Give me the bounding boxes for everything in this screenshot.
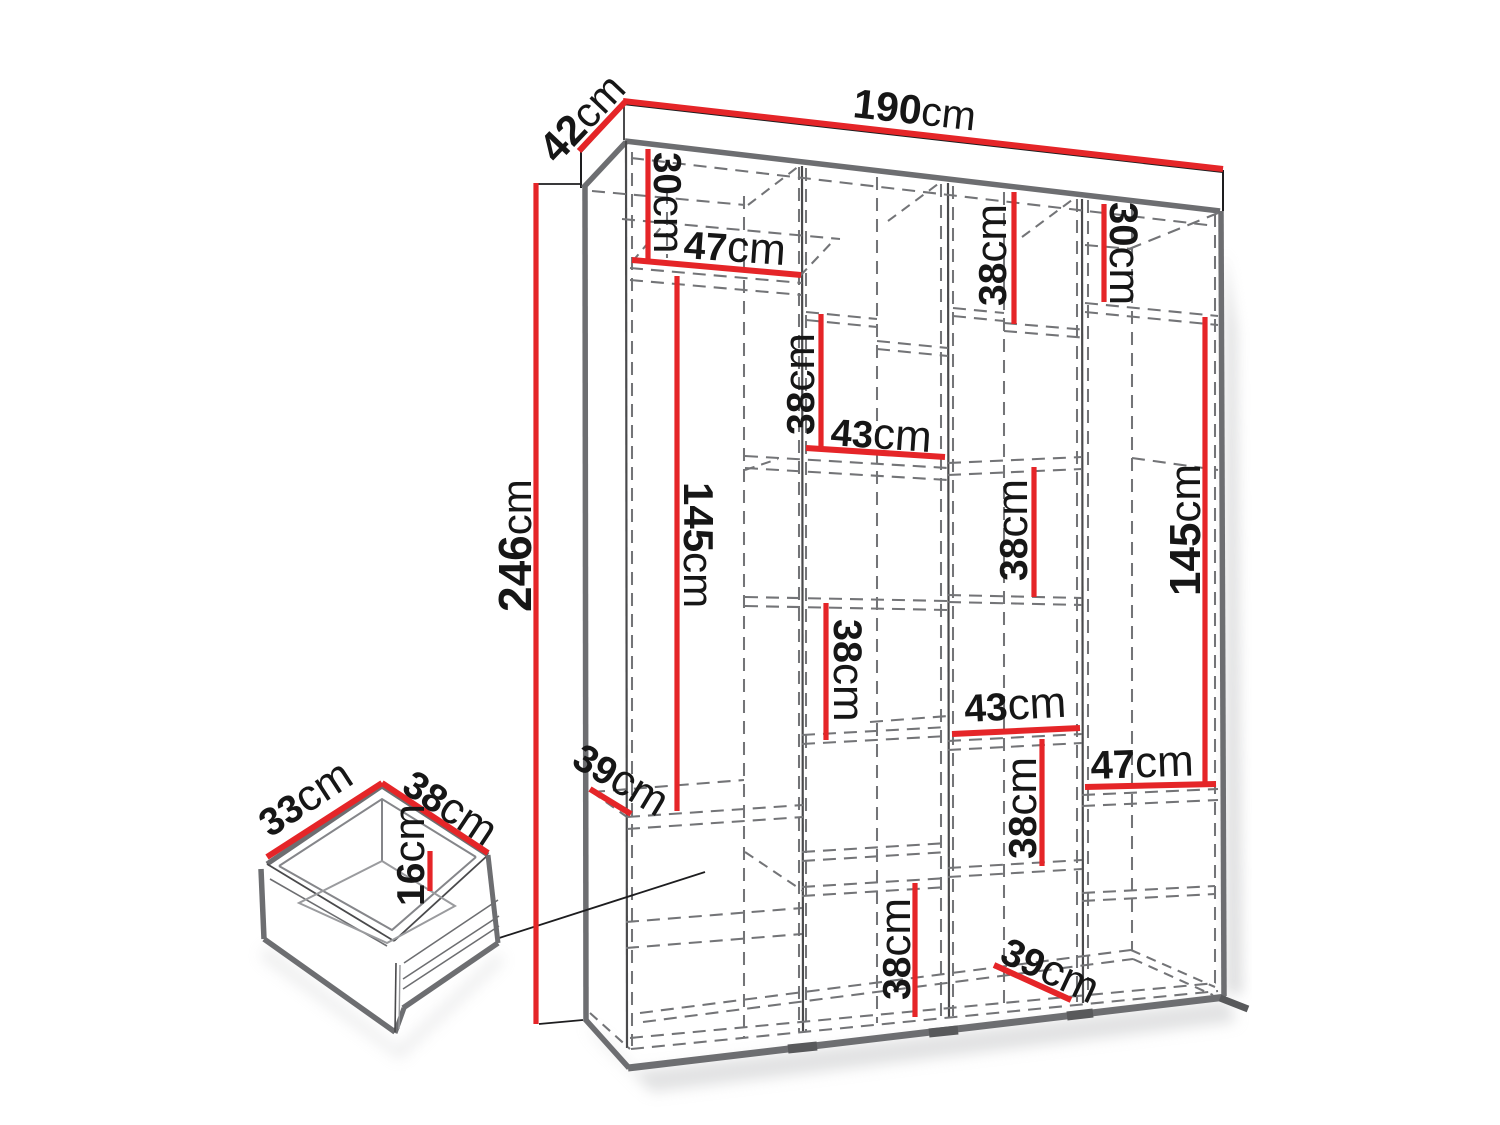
svg-text:16cm: 16cm [385, 804, 434, 906]
svg-text:47cm: 47cm [1090, 736, 1195, 789]
svg-text:145cm: 145cm [675, 482, 722, 608]
svg-text:145cm: 145cm [1161, 464, 1210, 596]
svg-text:38cm: 38cm [824, 619, 873, 722]
svg-text:38cm: 38cm [871, 898, 920, 1000]
svg-text:38cm: 38cm [775, 333, 824, 435]
svg-text:38cm: 38cm [988, 479, 1037, 581]
svg-text:30cm: 30cm [1100, 202, 1149, 305]
svg-text:47cm: 47cm [682, 219, 787, 275]
svg-text:38cm: 38cm [997, 757, 1046, 859]
svg-text:38cm: 38cm [967, 204, 1016, 306]
svg-text:246cm: 246cm [489, 479, 541, 612]
svg-text:43cm: 43cm [829, 406, 933, 462]
